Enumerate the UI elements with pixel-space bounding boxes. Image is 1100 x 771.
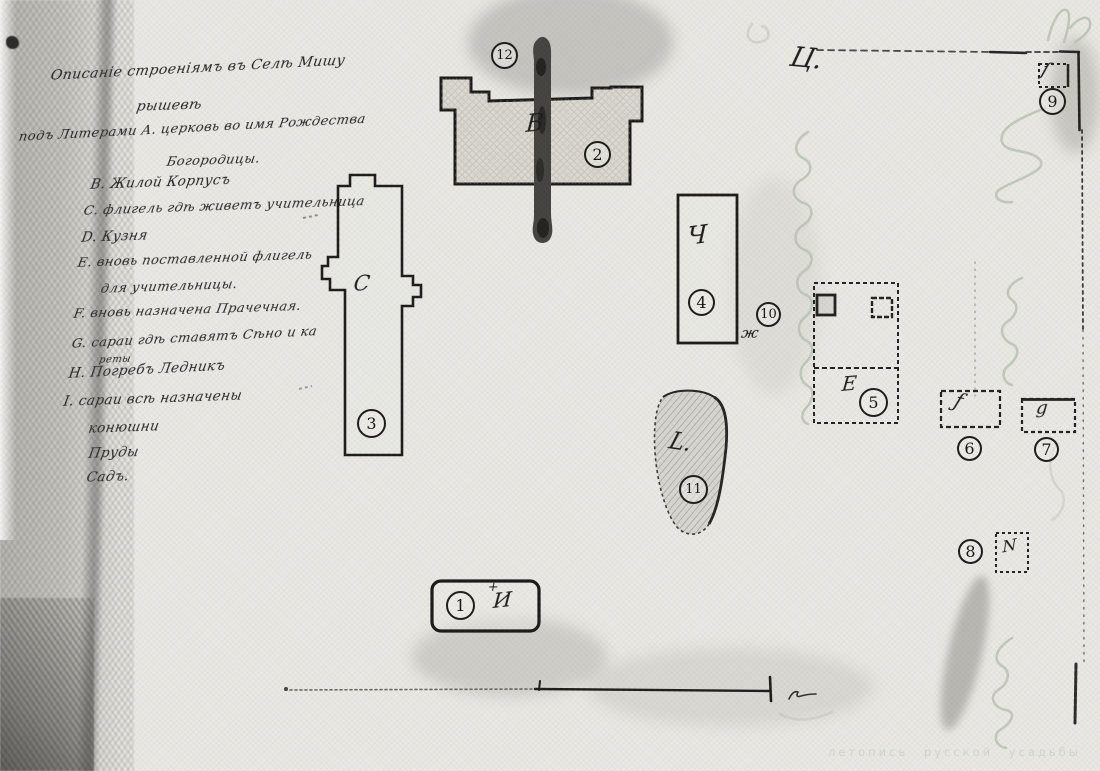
site-watermark: летопись русской усадьбы (828, 745, 1081, 759)
marker-circle-10: 10 (756, 302, 781, 327)
marker-circle-4: 4 (688, 289, 715, 316)
marker-circle-3: 3 (357, 409, 386, 438)
marker-circle-7: 7 (1034, 437, 1059, 462)
marker-circle-8: 8 (958, 539, 983, 564)
marker-circle-2: 2 (584, 141, 611, 168)
number-markers: 123456789101112 (0, 0, 1100, 771)
marker-circle-5: 5 (859, 388, 888, 417)
marker-circle-11: 11 (679, 475, 708, 504)
marker-circle-1: 1 (446, 591, 475, 620)
marker-circle-9: 9 (1039, 88, 1066, 115)
marker-circle-12: 12 (491, 42, 518, 69)
scanned-plan-page: Описаніе строеніямъ въ Селѣ Мишурышевѣпо… (0, 0, 1100, 771)
marker-circle-6: 6 (957, 436, 982, 461)
